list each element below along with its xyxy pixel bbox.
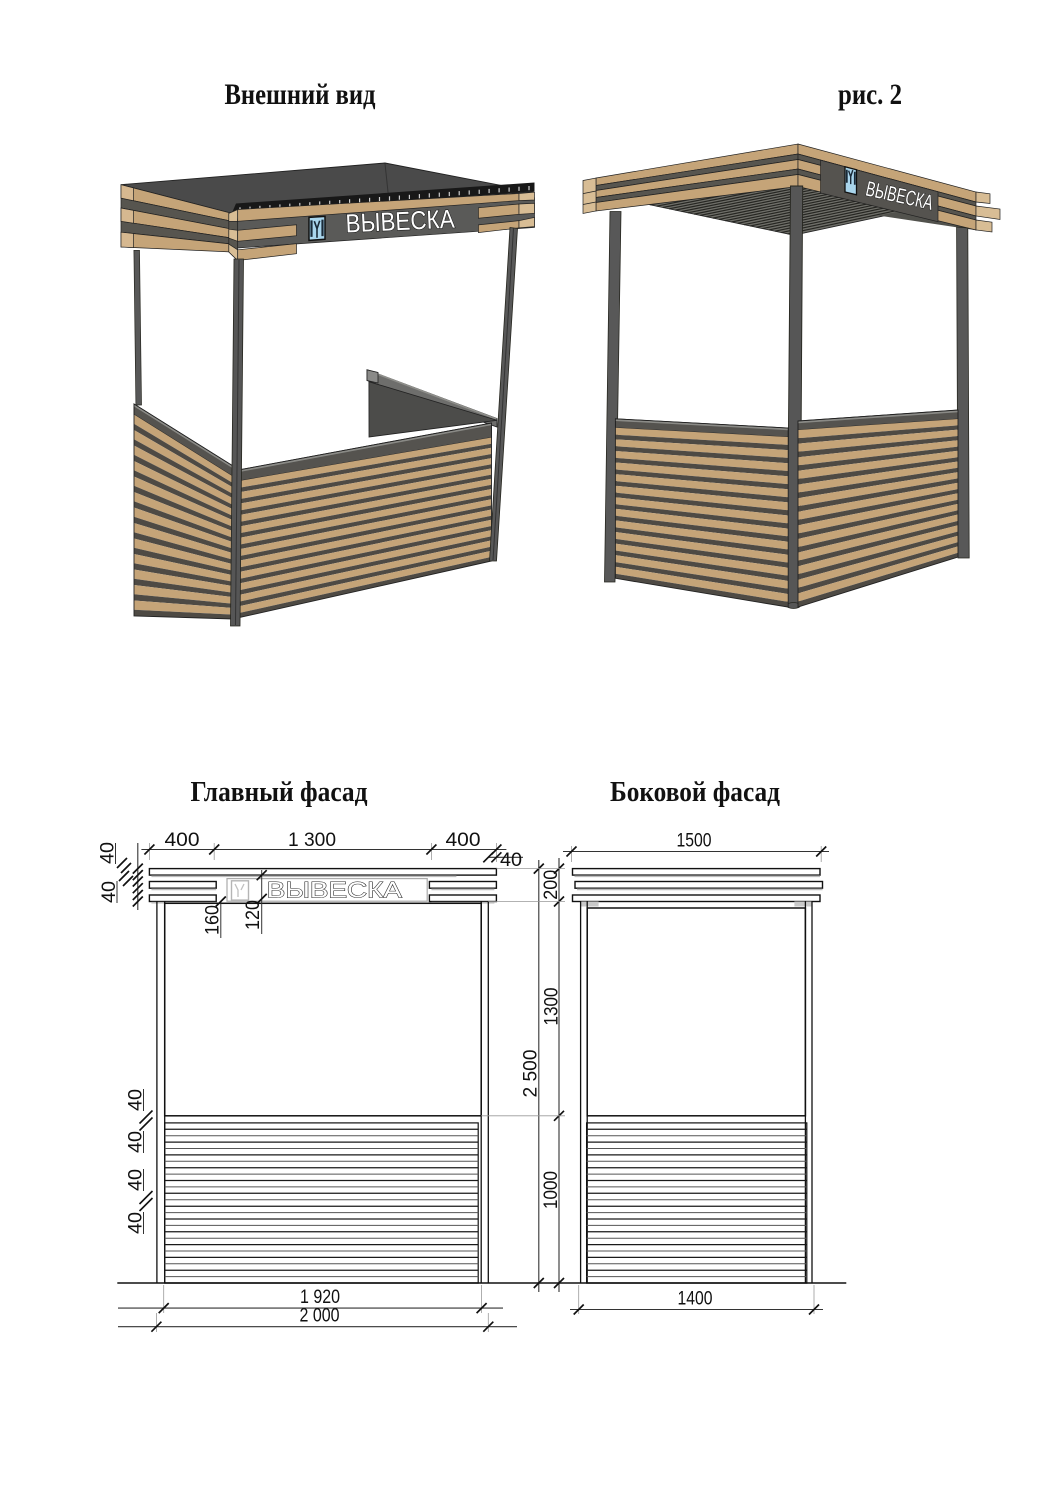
svg-text:200: 200	[541, 870, 562, 900]
svg-text:1500: 1500	[677, 831, 712, 852]
svg-text:2 500: 2 500	[521, 1050, 542, 1098]
svg-text:1300: 1300	[542, 988, 563, 1026]
svg-text:Внешний вид: Внешний вид	[225, 78, 376, 111]
svg-text:рис. 2: рис. 2	[838, 78, 902, 111]
svg-text:400: 400	[165, 830, 200, 851]
svg-text:1000: 1000	[541, 1171, 562, 1209]
svg-text:400: 400	[446, 830, 481, 851]
svg-text:120: 120	[243, 900, 264, 930]
svg-text:Боковой фасад: Боковой фасад	[610, 777, 780, 808]
svg-text:2 000: 2 000	[300, 1306, 340, 1327]
svg-text:ВЫВЕСКА: ВЫВЕСКА	[345, 204, 456, 239]
svg-text:Главный фасад: Главный фасад	[191, 777, 368, 808]
svg-text:40: 40	[500, 850, 522, 871]
svg-text:1 300: 1 300	[288, 830, 336, 851]
svg-text:1400: 1400	[678, 1289, 713, 1310]
svg-text:ВЫВЕСКА: ВЫВЕСКА	[267, 878, 402, 903]
